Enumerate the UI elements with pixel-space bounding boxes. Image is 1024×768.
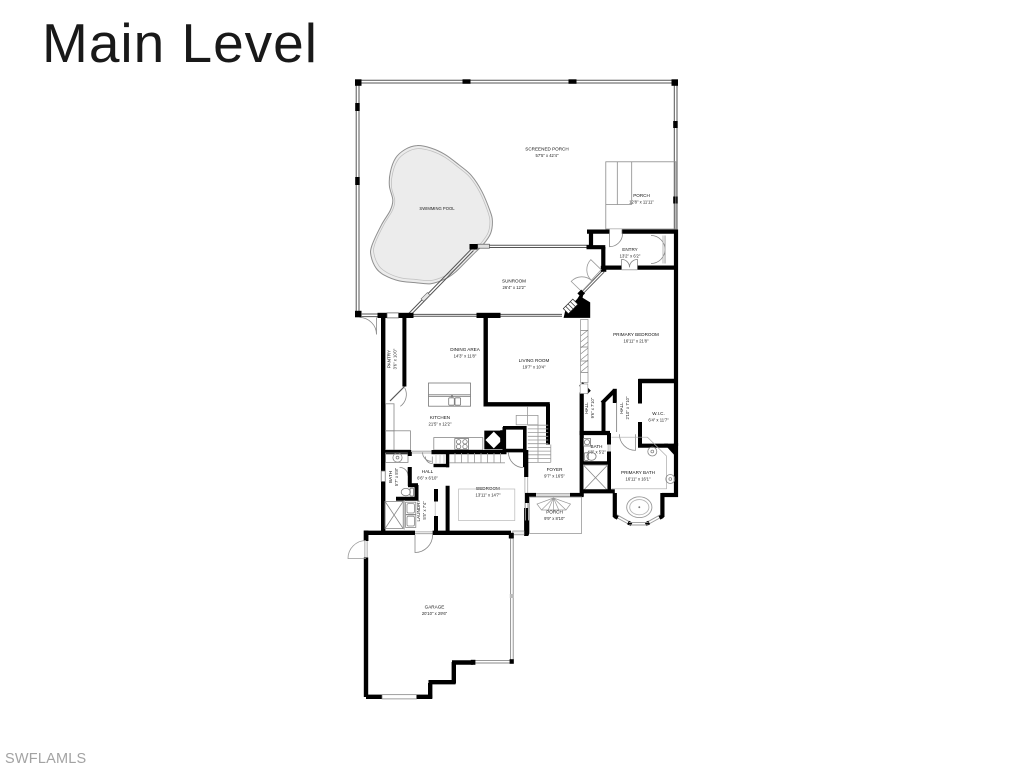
svg-text:GARAGE: GARAGE bbox=[425, 605, 445, 610]
svg-text:LAUNDRY: LAUNDRY bbox=[416, 500, 421, 522]
svg-text:PRIMARY BATH: PRIMARY BATH bbox=[621, 470, 655, 475]
svg-text:14'3" x 11'8": 14'3" x 11'8" bbox=[454, 354, 477, 359]
svg-text:12'8" x 11'11": 12'8" x 11'11" bbox=[629, 200, 654, 205]
svg-text:KITCHEN: KITCHEN bbox=[430, 415, 450, 420]
svg-text:W.I.C.: W.I.C. bbox=[652, 411, 665, 416]
svg-text:PORCH: PORCH bbox=[546, 510, 563, 515]
svg-text:SWFLAMLS: SWFLAMLS bbox=[5, 751, 86, 767]
svg-text:20'10" x 29'6": 20'10" x 29'6" bbox=[422, 611, 448, 616]
svg-text:FOYER: FOYER bbox=[547, 467, 564, 472]
svg-text:21'5" x 12'2": 21'5" x 12'2" bbox=[429, 422, 452, 427]
svg-text:PRIMARY BEDROOM: PRIMARY BEDROOM bbox=[613, 332, 659, 337]
svg-text:4'8" x 5'2": 4'8" x 5'2" bbox=[587, 450, 606, 455]
svg-text:6'4" x 11'7": 6'4" x 11'7" bbox=[648, 418, 669, 423]
svg-text:13'11" x 14'7": 13'11" x 14'7" bbox=[476, 493, 501, 498]
svg-text:SUNROOM: SUNROOM bbox=[502, 279, 526, 284]
svg-text:6'6" x 6'10": 6'6" x 6'10" bbox=[417, 476, 438, 481]
svg-text:LIVING ROOM: LIVING ROOM bbox=[519, 358, 550, 363]
svg-text:PORCH: PORCH bbox=[633, 193, 650, 198]
svg-text:3'6" x 10'0": 3'6" x 10'0" bbox=[393, 348, 398, 369]
svg-text:PANTRY: PANTRY bbox=[387, 350, 392, 368]
svg-text:Main Level: Main Level bbox=[42, 12, 318, 74]
svg-text:HALL: HALL bbox=[619, 402, 624, 414]
svg-text:HALL: HALL bbox=[584, 402, 589, 414]
svg-text:13'2" x 6'2": 13'2" x 6'2" bbox=[620, 254, 641, 259]
svg-text:ENTRY: ENTRY bbox=[622, 247, 638, 252]
svg-text:9'7" x 16'5": 9'7" x 16'5" bbox=[544, 474, 565, 479]
svg-text:BATH: BATH bbox=[591, 444, 603, 449]
svg-text:5'5" x 7'4": 5'5" x 7'4" bbox=[422, 501, 427, 520]
svg-text:57'5" x 42'4": 57'5" x 42'4" bbox=[536, 153, 559, 158]
svg-text:16'11" x 16'1": 16'11" x 16'1" bbox=[626, 477, 651, 482]
svg-text:HALL: HALL bbox=[422, 469, 434, 474]
svg-text:2'10" x 7'10": 2'10" x 7'10" bbox=[625, 396, 630, 419]
svg-text:5'7" x 5'8": 5'7" x 5'8" bbox=[394, 467, 399, 486]
svg-text:SCREENED PORCH: SCREENED PORCH bbox=[525, 147, 568, 152]
svg-text:BEDROOM: BEDROOM bbox=[476, 486, 500, 491]
svg-text:26'4" x 12'2": 26'4" x 12'2" bbox=[503, 285, 526, 290]
svg-text:9'9" x 8'10": 9'9" x 8'10" bbox=[544, 516, 565, 521]
svg-text:9'6" x 7'10": 9'6" x 7'10" bbox=[590, 397, 595, 418]
svg-text:DINING AREA: DINING AREA bbox=[450, 347, 481, 352]
svg-text:16'11" x 21'8": 16'11" x 21'8" bbox=[624, 339, 649, 344]
svg-text:SWIMMING POOL: SWIMMING POOL bbox=[419, 206, 455, 211]
svg-text:19'7" x 10'4": 19'7" x 10'4" bbox=[523, 365, 546, 370]
svg-text:BATH: BATH bbox=[388, 471, 393, 483]
